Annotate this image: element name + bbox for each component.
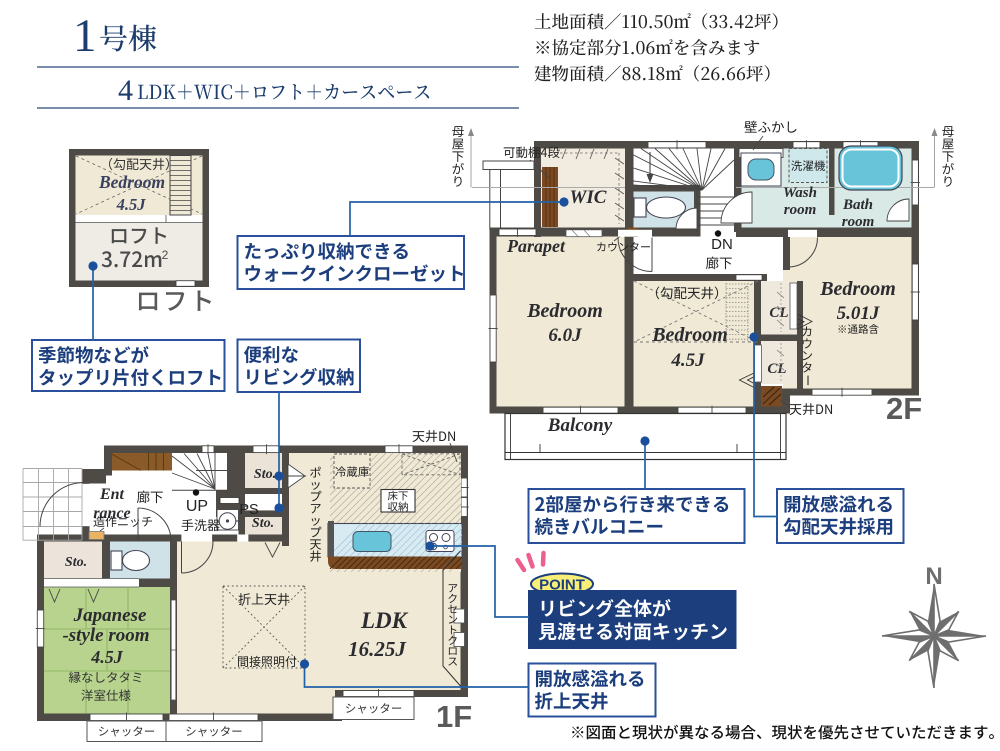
svg-text:Sto.: Sto. [65,555,87,570]
svg-text:Sto.: Sto. [252,516,274,531]
svg-text:Bath: Bath [842,197,873,213]
svg-text:UP: UP [186,498,208,515]
svg-text:4.5J: 4.5J [670,350,705,371]
svg-text:1: 1 [73,10,97,62]
svg-text:5.01J: 5.01J [837,303,880,324]
svg-text:DN: DN [711,236,733,253]
svg-text:Japanese: Japanese [73,605,147,626]
svg-text:4: 4 [118,74,133,107]
svg-text:Wash: Wash [783,185,817,201]
svg-text:16.25J: 16.25J [348,637,407,661]
svg-text:2: 2 [162,248,169,262]
svg-text:Bedroom: Bedroom [819,278,896,300]
svg-text:Parapet: Parapet [506,236,566,256]
svg-text:Bedroom: Bedroom [526,300,603,322]
svg-text:4.5J: 4.5J [116,195,147,214]
svg-text:1F: 1F [436,699,472,734]
svg-text:-style room: -style room [62,625,149,646]
svg-text:room: room [842,214,875,230]
svg-text:LDK: LDK [360,608,409,633]
svg-text:Bedroom: Bedroom [98,172,165,192]
svg-text:Bedroom: Bedroom [651,324,728,346]
svg-text:6.0J: 6.0J [548,325,582,346]
svg-text:4.5J: 4.5J [90,647,124,667]
svg-text:Sto.: Sto. [254,467,276,482]
svg-text:CL: CL [767,361,786,377]
svg-text:Balcony: Balcony [547,415,613,436]
svg-text:2F: 2F [886,391,922,426]
svg-text:WIC: WIC [570,187,607,208]
svg-text:Ent: Ent [99,486,125,503]
svg-text:room: room [784,202,817,218]
